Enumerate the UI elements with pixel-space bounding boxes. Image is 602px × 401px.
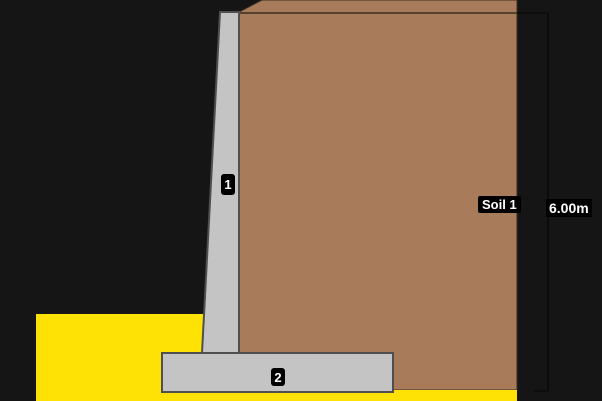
soil-name-label[interactable]: Soil 1 xyxy=(478,196,521,213)
footing-number-label[interactable]: 2 xyxy=(271,368,285,386)
stem-number-label[interactable]: 1 xyxy=(221,174,235,195)
drawing-canvas[interactable]: 1 2 Soil 1 6.00m xyxy=(0,0,602,401)
backfill-soil-body[interactable] xyxy=(239,0,517,390)
height-dimension-label: 6.00m xyxy=(546,199,592,217)
